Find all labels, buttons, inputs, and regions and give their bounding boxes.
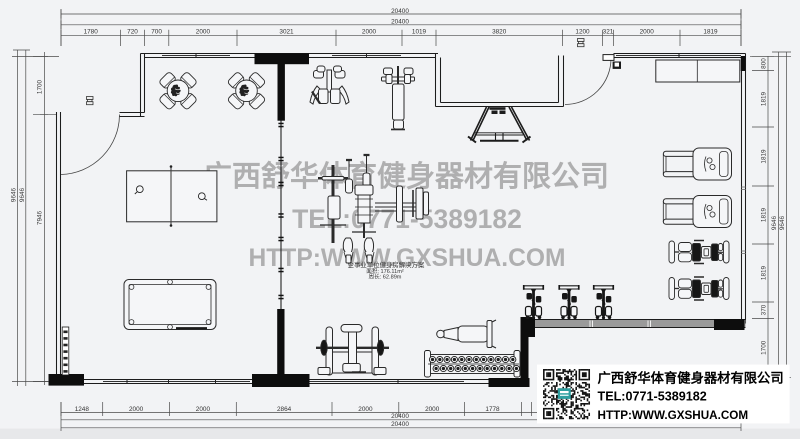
- svg-text:3820: 3820: [492, 29, 507, 36]
- svg-text:20400: 20400: [391, 8, 409, 15]
- svg-text:广西舒华体育健身器材有限公司: 广西舒华体育健身器材有限公司: [203, 159, 609, 193]
- svg-text:1700: 1700: [37, 79, 44, 94]
- svg-text:企事业单位健身房解决方案: 企事业单位健身房解决方案: [348, 260, 425, 269]
- svg-text:7946: 7946: [37, 210, 44, 225]
- svg-text:1780: 1780: [84, 29, 99, 36]
- svg-text:广西舒华体育健身器材有限公司: 广西舒华体育健身器材有限公司: [598, 369, 784, 385]
- svg-text:1019: 1019: [412, 29, 427, 36]
- svg-text:20400: 20400: [391, 421, 409, 428]
- svg-text:9646: 9646: [771, 215, 778, 230]
- svg-text:20400: 20400: [391, 19, 409, 26]
- svg-text:9646: 9646: [11, 187, 18, 202]
- svg-text:20400: 20400: [391, 413, 409, 420]
- svg-text:321: 321: [603, 29, 614, 36]
- svg-text:周长: 62.89m: 周长: 62.89m: [369, 272, 402, 280]
- svg-text:2864: 2864: [277, 406, 292, 413]
- svg-text:800: 800: [761, 58, 768, 69]
- svg-text:2000: 2000: [425, 406, 440, 413]
- svg-text:HTTP:WWW.GXSHUA.COM: HTTP:WWW.GXSHUA.COM: [598, 409, 749, 422]
- svg-text:1819: 1819: [761, 207, 768, 222]
- svg-text:1819: 1819: [761, 149, 768, 164]
- svg-text:2000: 2000: [362, 29, 377, 36]
- svg-text:1819: 1819: [703, 29, 718, 36]
- svg-text:TEL:0771-5389182: TEL:0771-5389182: [598, 390, 707, 404]
- svg-text:TEL:0771-5389182: TEL:0771-5389182: [292, 204, 522, 234]
- svg-text:3021: 3021: [279, 29, 294, 36]
- svg-text:1778: 1778: [485, 406, 500, 413]
- svg-text:1700: 1700: [761, 340, 768, 355]
- svg-text:1200: 1200: [575, 29, 590, 36]
- svg-text:1819: 1819: [761, 265, 768, 280]
- svg-text:9646: 9646: [19, 187, 26, 202]
- svg-text:2000: 2000: [196, 29, 211, 36]
- svg-text:2000: 2000: [640, 29, 655, 36]
- svg-text:720: 720: [127, 29, 138, 36]
- svg-text:2000: 2000: [129, 406, 144, 413]
- svg-text:1819: 1819: [761, 91, 768, 106]
- svg-text:700: 700: [151, 29, 162, 36]
- svg-text:370: 370: [761, 304, 768, 315]
- svg-text:2000: 2000: [196, 406, 211, 413]
- svg-text:2000: 2000: [358, 406, 373, 413]
- svg-text:9646: 9646: [779, 215, 786, 230]
- svg-text:1248: 1248: [75, 406, 90, 413]
